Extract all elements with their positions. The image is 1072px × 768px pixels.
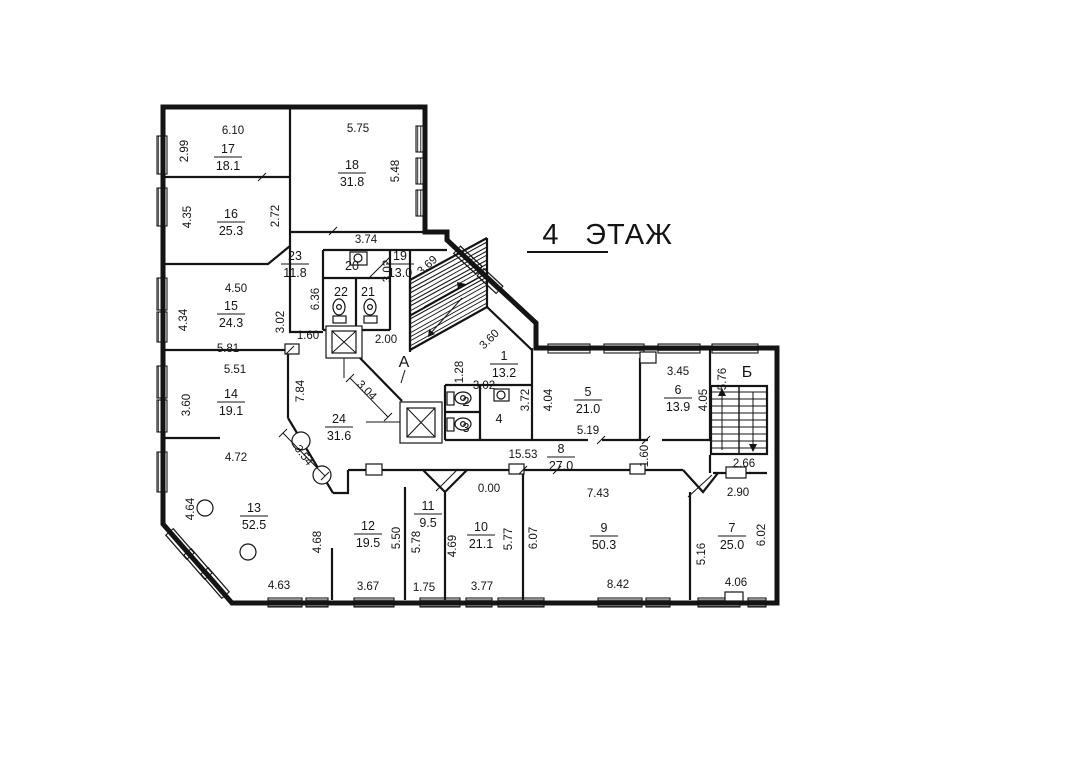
room-number: 7: [729, 521, 736, 535]
room-number: 8: [558, 442, 565, 456]
floor-plan-drawing: 4 ЭТАЖ 113.2234521.0613.9725.0827.0950.3…: [0, 0, 1072, 768]
dimension-label: 3.74: [355, 234, 378, 246]
room-area: 13.2: [492, 366, 516, 380]
dimension-label: 4.34: [178, 308, 190, 331]
room-number: 6: [675, 383, 682, 397]
room-number: 21: [361, 285, 375, 299]
dimension-label: 3.77: [471, 581, 493, 593]
room-number: 17: [221, 142, 235, 156]
dimension-label: 4.05: [698, 389, 710, 411]
dimension-label: 6.02: [756, 524, 768, 546]
dimension-label: 1.60: [639, 445, 651, 467]
dimension-label: 3.60: [181, 394, 193, 416]
room-area: 24.3: [219, 316, 243, 330]
room-number: 10: [474, 520, 488, 534]
dimension-label: 4.35: [182, 206, 194, 228]
dimension-label: 3.02: [382, 260, 394, 282]
toilet-icon: [364, 299, 377, 323]
room-area: 21.1: [469, 537, 493, 551]
dimension-label: 1.60: [297, 330, 319, 342]
dimension-label: 3.67: [357, 581, 379, 593]
stairwell-letter: Б: [742, 364, 753, 381]
dimension-label: 4.72: [225, 452, 247, 464]
room-label: 4: [496, 412, 503, 426]
room-area: 31.6: [327, 429, 351, 443]
dimension-label: 4.69: [447, 535, 459, 557]
room-area: 31.8: [340, 175, 364, 189]
dimension-label: 3.72: [520, 389, 532, 411]
room-number: 4: [496, 412, 503, 426]
dimension-label: 2.99: [179, 140, 191, 162]
dimension-label: 2.90: [727, 487, 749, 499]
room-area: 18.1: [216, 159, 240, 173]
room-number: 1: [501, 349, 508, 363]
room-number: 3: [463, 421, 470, 435]
dimension-label: 5.81: [217, 343, 239, 355]
room-number: 19: [393, 249, 407, 263]
dimension-label: 3.02: [275, 311, 287, 333]
room-number: 2: [463, 395, 470, 409]
room-area: 11.8: [283, 266, 306, 280]
dimension-label: 6.10: [222, 125, 244, 137]
dimension-label: 4.68: [312, 531, 324, 553]
dimension-label: 5.75: [347, 123, 369, 135]
room-number: 13: [247, 501, 261, 515]
dimension-label: 7.84: [295, 379, 307, 402]
room-area: 13.9: [666, 400, 690, 414]
dimension-label: 4.50: [225, 283, 247, 295]
room-number: 14: [224, 387, 238, 401]
room-label: 3: [463, 421, 470, 435]
room-number: 5: [585, 385, 592, 399]
dimension-label: 2.00: [375, 334, 397, 346]
room-label: 20: [345, 259, 359, 273]
dimension-label: 5.78: [411, 531, 423, 553]
dimension-label: 5.48: [390, 160, 402, 182]
room-number: 12: [361, 519, 375, 533]
room-number: 9: [601, 521, 608, 535]
room-area: 25.0: [720, 538, 744, 552]
floor-number: 4: [542, 219, 559, 251]
toilet-icon: [333, 299, 346, 323]
room-number: 22: [334, 285, 348, 299]
stairwell-letter: А: [399, 354, 410, 371]
room-label: 2: [463, 395, 470, 409]
dimension-label: 2.66: [733, 458, 755, 470]
dimension-label: 6.07: [528, 527, 540, 549]
dimension-label: 0.00: [478, 483, 500, 495]
dimension-label: 15.53: [509, 449, 538, 461]
floor-plan-page: 4 ЭТАЖ 113.2234521.0613.9725.0827.0950.3…: [0, 0, 1072, 768]
room-label: 21: [361, 285, 375, 299]
floor-label: ЭТАЖ: [585, 219, 673, 251]
room-area: 27.0: [549, 459, 573, 473]
room-number: 16: [224, 207, 238, 221]
room-area: 25.3: [219, 224, 243, 238]
room-number: 20: [345, 259, 359, 273]
room-label: 22: [334, 285, 348, 299]
room-number: 24: [332, 412, 346, 426]
room-number: 11: [422, 499, 435, 513]
dimension-label: 4.63: [268, 580, 290, 592]
dimension-label: 2.72: [270, 205, 282, 227]
dimension-label: 5.19: [577, 425, 599, 437]
room-area: 21.0: [576, 402, 600, 416]
dimension-label: 5.51: [224, 364, 246, 376]
dimension-label: 5.76: [717, 368, 729, 390]
room-area: 52.5: [242, 518, 266, 532]
dimension-label: 1.28: [454, 361, 466, 383]
page-title: 4 ЭТАЖ: [527, 219, 673, 252]
room-area: 19.1: [219, 404, 243, 418]
dimension-label: 4.64: [185, 497, 197, 520]
room-area: 9.5: [419, 516, 436, 530]
room-number: 23: [288, 249, 302, 263]
dimension-label: 3.02: [473, 380, 495, 392]
sink-icon: [494, 389, 509, 401]
room-number: 18: [345, 158, 359, 172]
dimension-label: 1.75: [413, 582, 435, 594]
dimension-label: 4.04: [543, 388, 555, 411]
room-area: 50.3: [592, 538, 616, 552]
dimension-label: 4.06: [725, 577, 747, 589]
room-area: 19.5: [356, 536, 380, 550]
dimension-label: 8.42: [607, 579, 629, 591]
dimension-label: 5.16: [696, 543, 708, 565]
dimension-label: 3.45: [667, 366, 689, 378]
dimension-label: 6.36: [310, 288, 322, 310]
dimension-label: 7.43: [587, 488, 609, 500]
room-number: 15: [224, 299, 238, 313]
dimension-label: 5.50: [391, 527, 403, 549]
dimension-label: 5.77: [503, 528, 515, 550]
